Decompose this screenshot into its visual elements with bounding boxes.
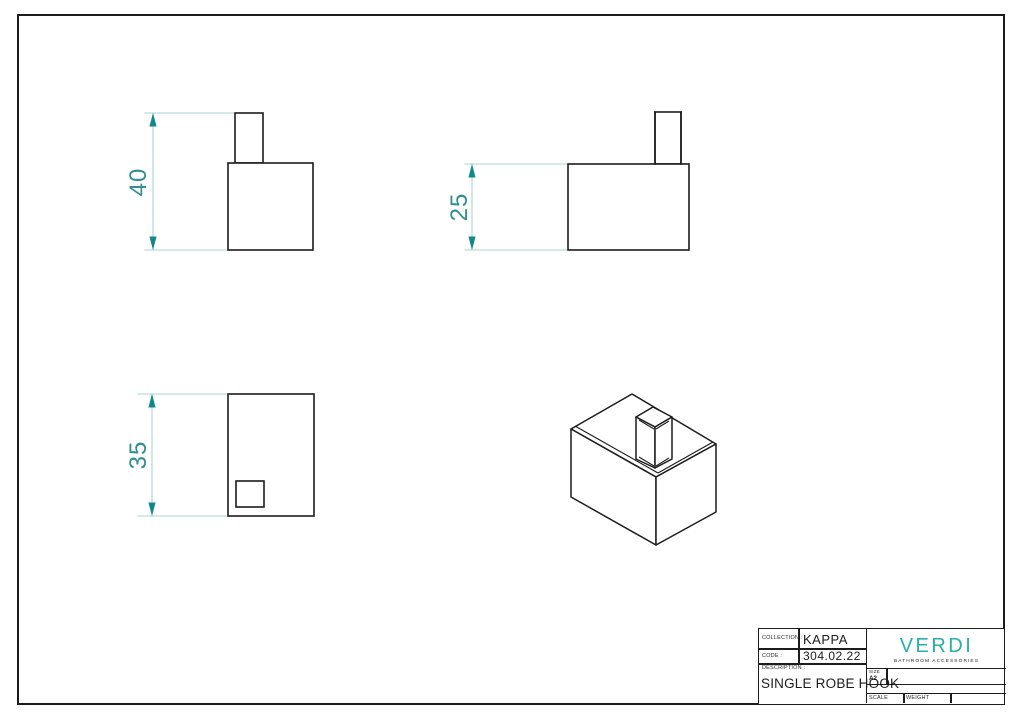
dimension-label-40: 40 [127,168,151,197]
size-value: A2 [869,676,877,682]
titleblock-line [950,693,952,703]
side-body [568,164,689,250]
front-view [145,113,313,250]
description-label: DESCRIPTION : [762,666,805,672]
side-hook-post [655,112,681,164]
dimension-arrow-up [148,394,155,408]
dimension-label-25: 25 [448,193,472,222]
front-body [228,163,313,250]
top-hook-post [236,481,264,507]
dimension-arrow-up [149,113,156,127]
collection-label: COLLECTION : [762,636,803,642]
titleblock-line [866,693,1006,695]
dimension-label-35: 35 [127,441,151,470]
collection-value: KAPPA [803,633,848,646]
dimension-arrow-down [468,237,475,251]
description-value: SINGLE ROBE HOOK [761,677,899,691]
isometric-view [571,394,716,545]
size-label: SIZE [869,670,880,675]
weight-label: WEIGHT [906,696,929,702]
titleblock-line [903,693,905,703]
brand-logo: VERDI BATHROOM ACCESSORIES [867,629,1006,669]
brand-tagline: BATHROOM ACCESSORIES [894,659,979,664]
dimension-arrow-down [148,503,155,517]
drawing-canvas [0,0,1024,724]
brand-name: VERDI [900,635,974,658]
scale-label: SCALE [869,696,888,702]
title-block: COLLECTION : KAPPA CODE : 304.02.22 DESC… [758,628,1005,705]
code-label: CODE : [762,654,782,660]
top-view [138,394,314,516]
front-hook-post [235,113,263,163]
dimension-arrow-up [468,164,475,178]
side-view [465,112,689,250]
dimension-arrow-down [149,237,156,251]
code-value: 304.02.22 [803,650,861,662]
drawing-sheet: 40 25 35 COLLECTION : KAPPA CODE : 304.0… [0,0,1024,724]
